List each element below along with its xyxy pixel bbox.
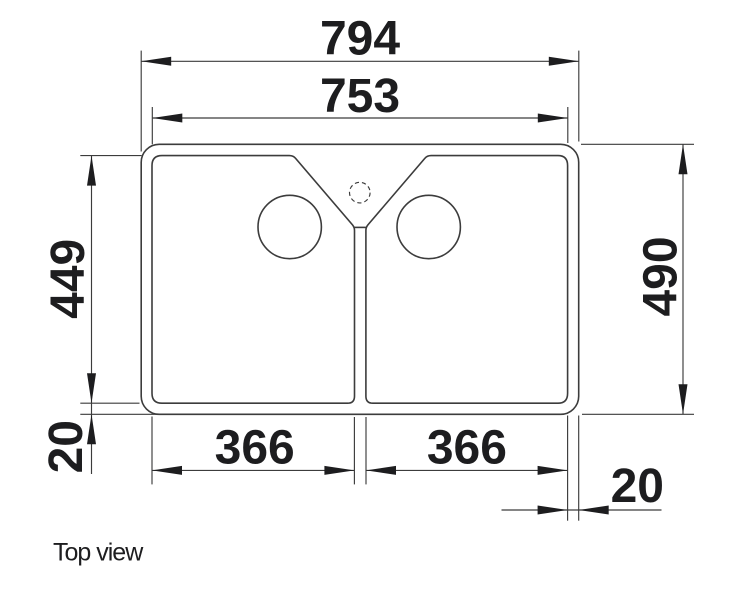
svg-text:20: 20 [40,420,93,473]
svg-text:753: 753 [320,70,400,123]
svg-text:366: 366 [215,422,295,475]
svg-text:Top view: Top view [53,538,144,566]
svg-text:449: 449 [42,239,95,319]
svg-text:366: 366 [427,422,507,475]
svg-text:794: 794 [320,13,400,66]
svg-text:20: 20 [611,460,664,513]
svg-text:490: 490 [635,236,688,316]
